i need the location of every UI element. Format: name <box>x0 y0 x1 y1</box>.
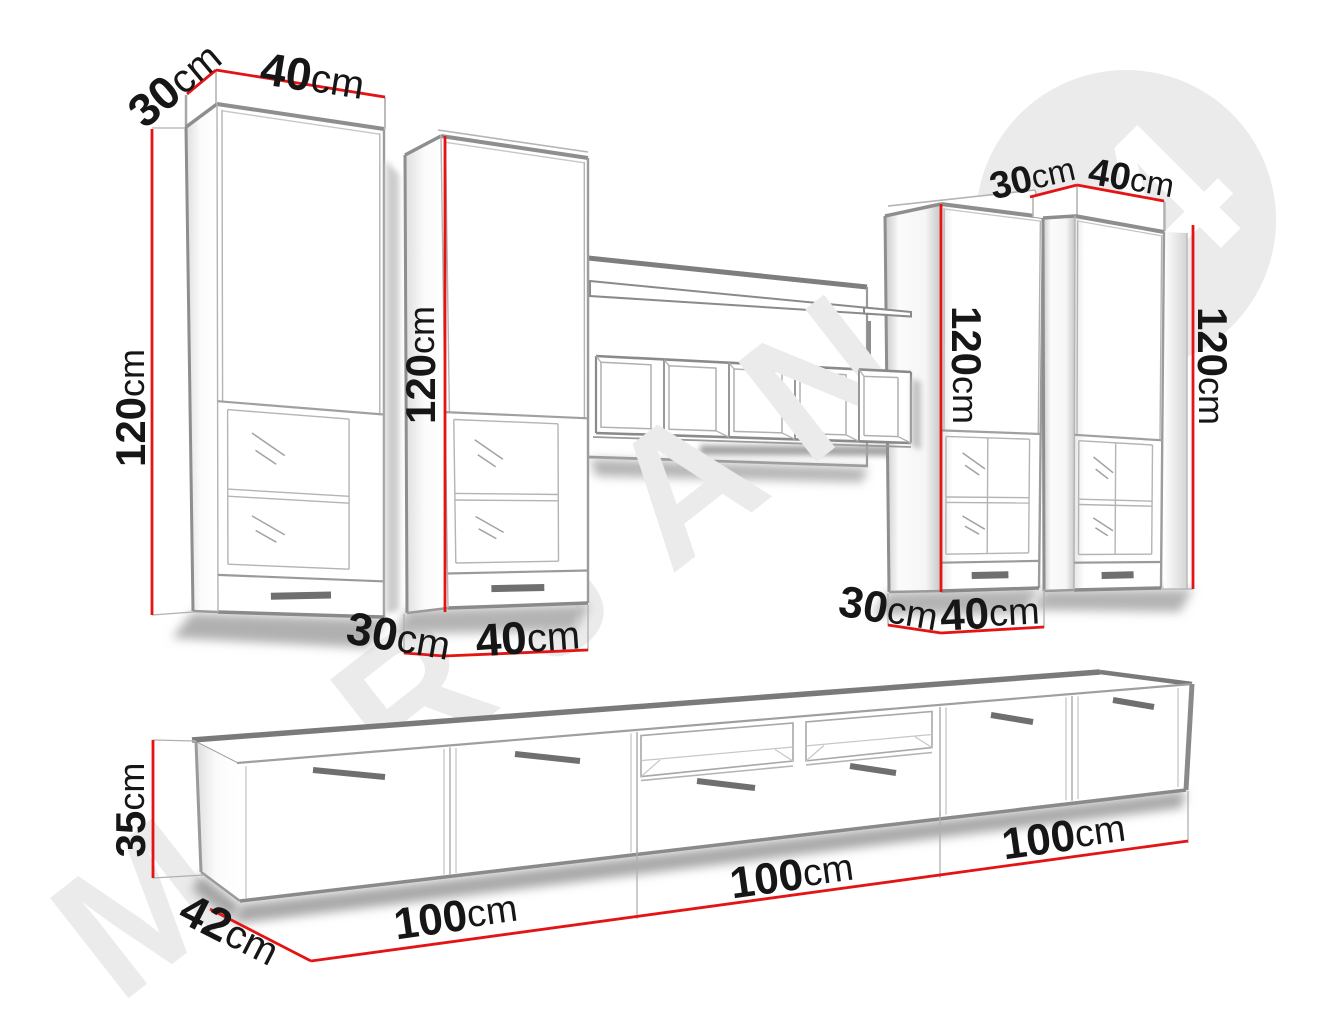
svg-text:40cm: 40cm <box>939 586 1041 640</box>
svg-text:35cm: 35cm <box>107 763 154 858</box>
svg-text:120cm: 120cm <box>943 306 990 424</box>
svg-text:40cm: 40cm <box>474 608 582 667</box>
svg-text:120cm: 120cm <box>107 349 154 467</box>
svg-text:120cm: 120cm <box>1189 307 1236 425</box>
svg-text:120cm: 120cm <box>397 306 444 424</box>
